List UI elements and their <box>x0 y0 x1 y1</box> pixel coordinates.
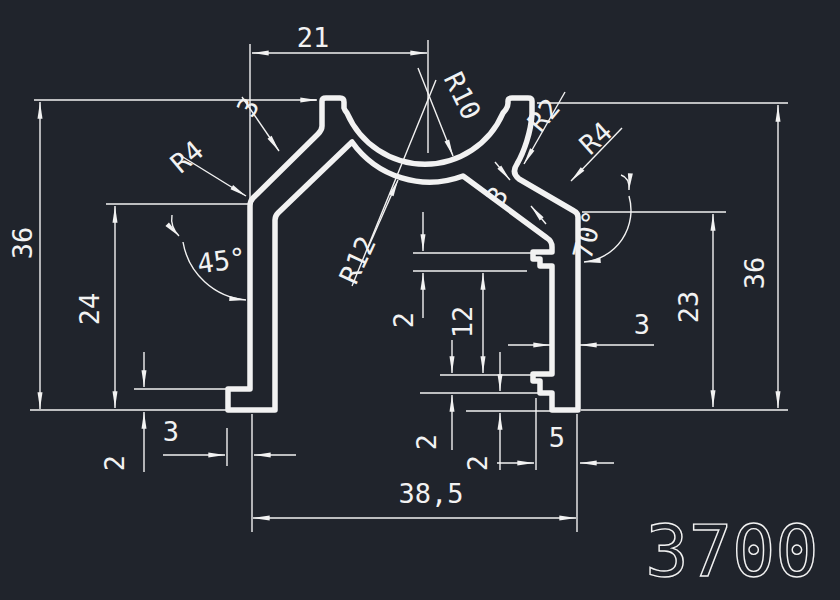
dim-overall-height-left: 36 <box>7 227 38 260</box>
dim-right-fillet-radius: R4 <box>573 116 618 161</box>
dim-left-slope-thickness: 3 <box>230 92 265 122</box>
dim-right-foot-height: 2 <box>462 455 493 471</box>
dim-left-fillet-radius: R4 <box>164 134 209 179</box>
profile-outline <box>228 98 578 410</box>
dim-left-foot-width: 3 <box>163 416 179 447</box>
cad-viewport: 21 36 36 24 23 38,5 12 5 3 3 3 3 2 2 2 2… <box>0 0 840 600</box>
dim-left-angle: 45° <box>195 242 248 279</box>
part-number: 3700 <box>645 509 818 593</box>
dim-right-slope-thickness: 3 <box>479 181 514 211</box>
dim-overall-height-right: 36 <box>739 257 770 290</box>
dim-upper-lip-height: 2 <box>388 312 419 328</box>
dim-top-width: 21 <box>297 22 330 53</box>
dim-left-foot-height: 2 <box>99 455 130 471</box>
dim-bowl-outer-radius: R12 <box>333 231 382 288</box>
dim-bowl-inner-radius: R10 <box>438 67 487 124</box>
dim-right-wall-height: 23 <box>673 291 704 324</box>
dim-right-wall-thickness: 3 <box>634 309 650 340</box>
cad-drawing-canvas: 21 36 36 24 23 38,5 12 5 3 3 3 3 2 2 2 2… <box>0 0 840 600</box>
dimension-labels: 21 36 36 24 23 38,5 12 5 3 3 3 3 2 2 2 2… <box>7 22 770 509</box>
dim-left-wall-height: 24 <box>74 293 105 326</box>
dim-right-slot-height: 12 <box>447 306 478 339</box>
dim-lower-lip-height: 2 <box>411 434 442 450</box>
dimension-arrows <box>40 53 778 518</box>
dim-right-angle: 70° <box>567 207 609 262</box>
dim-right-foot-width: 5 <box>549 422 565 453</box>
dim-overall-width: 38,5 <box>398 478 463 509</box>
